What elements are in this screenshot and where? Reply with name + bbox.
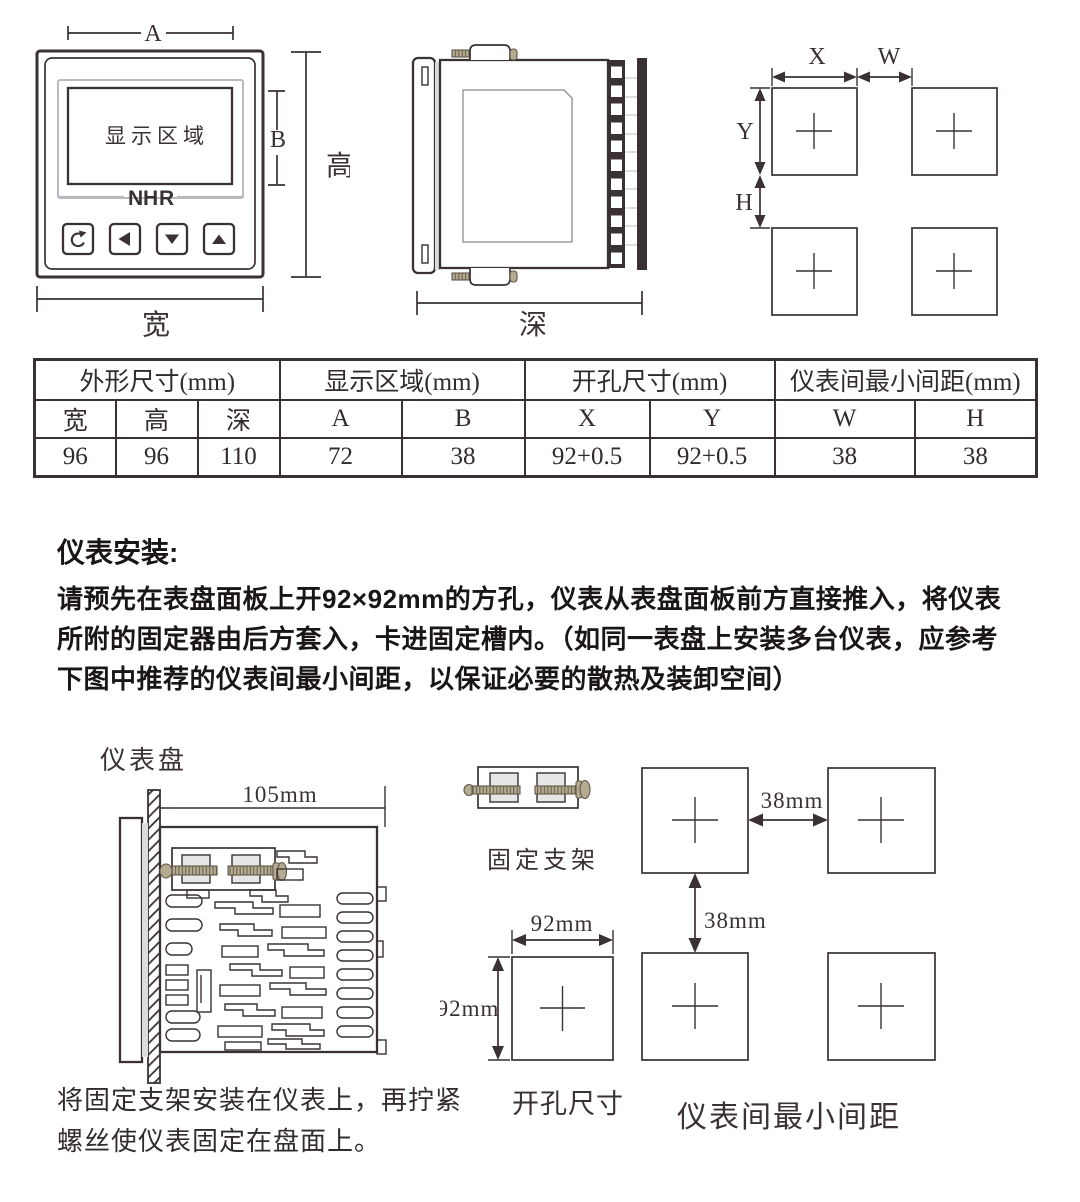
cutout-spacing-diagram: X W Y H <box>700 30 1040 330</box>
logo-letter-h: H <box>143 187 158 210</box>
val-h: 38 <box>915 438 1037 477</box>
panel-label: 仪表盘 <box>100 740 187 777</box>
front-view-diagram: A 显示区域 N H R <box>20 18 350 348</box>
fixing-bracket-diagram <box>455 755 600 815</box>
col-b: B <box>402 400 525 438</box>
dim-w: W <box>857 44 912 86</box>
side-view-diagram: 深 <box>400 35 670 340</box>
logo-letter-n: N <box>128 187 143 210</box>
group-spacing: 仪表间最小间距(mm) <box>775 360 1037 401</box>
dim-width: 宽 <box>37 286 263 341</box>
col-x: X <box>525 400 650 438</box>
bracket-note: 将固定支架安装在仪表上，再拧紧螺丝使仪表固定在盘面上。 <box>57 1080 462 1162</box>
group-display: 显示区域(mm) <box>280 360 525 401</box>
min-spacing-diagram: 38mm 38mm <box>635 755 945 1067</box>
group-cutout: 开孔尺寸(mm) <box>525 360 775 401</box>
return-arrow-icon <box>72 231 87 247</box>
panel-hatch-bar <box>148 790 160 1083</box>
terminal-block <box>608 58 647 270</box>
dim-label-92mm-left: 92mm <box>440 996 499 1021</box>
dim-label-y: Y <box>736 119 753 145</box>
install-section: 仪表安装: 请预先在表盘面板上开92×92mm的方孔，仪表从表盘面板前方直接推入… <box>57 536 1037 699</box>
up-triangle-icon <box>212 235 226 245</box>
down-triangle-icon <box>165 235 179 245</box>
hole-size-caption: 开孔尺寸 <box>512 1082 624 1121</box>
cutout-squares <box>772 88 997 315</box>
dim-h: H <box>735 175 770 228</box>
dim-label-width: 宽 <box>142 309 170 341</box>
dim-105mm: 105mm <box>160 782 385 827</box>
bottom-mount-bracket <box>452 268 517 285</box>
install-line-3: 下图中推荐的仪表间最小间距，以保证必要的散热及装卸空间） <box>57 664 799 694</box>
dim-label-h: H <box>735 190 752 216</box>
dim-label-height: 高 <box>326 150 350 182</box>
group-outline: 外形尺寸(mm) <box>35 360 280 401</box>
dim-92mm-top: 92mm <box>512 911 613 954</box>
dim-label-b: B <box>270 127 286 153</box>
dim-label-105mm: 105mm <box>242 782 317 807</box>
col-a: A <box>280 400 402 438</box>
val-y: 92+0.5 <box>650 438 775 477</box>
hole-cross <box>540 986 585 1031</box>
dim-a: A <box>68 21 233 47</box>
dim-b: B <box>268 91 286 185</box>
min-spacing-caption: 仪表间最小间距 <box>677 1092 901 1136</box>
install-title: 仪表安装: <box>57 536 1037 570</box>
col-width: 宽 <box>35 400 116 438</box>
spec-table: 外形尺寸(mm) 显示区域(mm) 开孔尺寸(mm) 仪表间最小间距(mm) 宽… <box>33 358 1038 478</box>
dim-depth: 深 <box>417 291 642 340</box>
dim-38mm-vertical: 38mm <box>689 873 767 953</box>
dim-label-92mm-top: 92mm <box>531 911 594 936</box>
dim-x: X <box>772 44 857 86</box>
bracket-note-line-2: 螺丝使仪表固定在盘面上。 <box>57 1127 381 1156</box>
val-width: 96 <box>35 438 116 477</box>
dim-label-w: W <box>878 44 901 70</box>
bracket-label: 固定支架 <box>487 840 599 875</box>
mount-bezel <box>120 818 142 1062</box>
dim-38mm-horizontal: 38mm <box>748 788 828 827</box>
install-line-1: 请预先在表盘面板上开92×92mm的方孔，仪表从表盘面板前方直接推入，将仪表 <box>57 584 1001 614</box>
col-h: H <box>915 400 1037 438</box>
val-b: 38 <box>402 438 525 477</box>
col-depth: 深 <box>198 400 280 438</box>
top-mount-bracket <box>452 45 517 60</box>
val-depth: 110 <box>198 438 280 477</box>
val-x: 92+0.5 <box>525 438 650 477</box>
dim-y: Y <box>736 88 770 175</box>
col-y: Y <box>650 400 775 438</box>
install-line-2: 所附的固定器由后方套入，卡进固定槽内。（如同一表盘上安装多台仪表，应参考 <box>57 624 998 654</box>
dim-label-x: X <box>808 44 825 70</box>
button-return <box>63 224 93 254</box>
left-triangle-icon <box>119 232 131 246</box>
table-group-header-row: 外形尺寸(mm) 显示区域(mm) 开孔尺寸(mm) 仪表间最小间距(mm) <box>35 360 1037 401</box>
front-buttons <box>63 224 234 254</box>
val-height: 96 <box>116 438 198 477</box>
bracket-note-line-1: 将固定支架安装在仪表上，再拧紧 <box>57 1086 462 1115</box>
logo-letter-r: R <box>159 187 174 210</box>
side-bezel <box>413 58 435 273</box>
dim-label-38mm-h: 38mm <box>761 788 824 813</box>
col-height: 高 <box>116 400 198 438</box>
install-paragraph: 请预先在表盘面板上开92×92mm的方孔，仪表从表盘面板前方直接推入，将仪表所附… <box>57 579 1037 699</box>
col-w: W <box>775 400 915 438</box>
side-body <box>440 60 608 268</box>
val-w: 38 <box>775 438 915 477</box>
dim-92mm-left: 92mm <box>440 957 510 1060</box>
dim-label-depth: 深 <box>519 310 547 340</box>
panel-mount-diagram: 105mm <box>110 775 410 1095</box>
table-values-row: 96 96 110 72 38 92+0.5 92+0.5 38 38 <box>35 438 1037 477</box>
val-a: 72 <box>280 438 402 477</box>
hole-size-diagram: 92mm 92mm <box>440 900 640 1070</box>
dim-height: 高 <box>291 52 350 277</box>
display-area-label: 显示区域 <box>105 124 209 148</box>
manual-page: A 显示区域 N H R <box>0 0 1080 1202</box>
dim-label-a: A <box>144 21 162 47</box>
table-subheader-row: 宽 高 深 A B X Y W H <box>35 400 1037 438</box>
dim-label-38mm-v: 38mm <box>704 908 767 933</box>
